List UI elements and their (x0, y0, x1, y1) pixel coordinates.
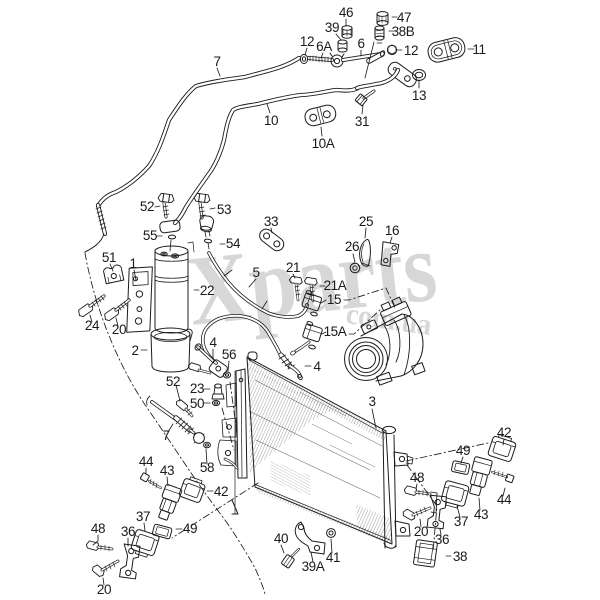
svg-text:43: 43 (160, 463, 174, 478)
svg-text:44: 44 (497, 492, 512, 507)
svg-text:12: 12 (404, 43, 418, 58)
svg-text:42: 42 (214, 484, 228, 499)
svg-text:5: 5 (252, 265, 259, 280)
svg-text:49: 49 (456, 443, 470, 458)
svg-text:13: 13 (412, 88, 426, 103)
svg-text:42: 42 (497, 425, 511, 440)
svg-text:10A: 10A (312, 136, 335, 151)
svg-text:23: 23 (190, 381, 204, 396)
svg-text:48: 48 (410, 470, 424, 485)
svg-text:15A: 15A (324, 324, 347, 339)
svg-text:4: 4 (209, 335, 217, 350)
svg-text:25: 25 (359, 214, 373, 229)
svg-text:56: 56 (222, 347, 236, 362)
svg-text:33: 33 (264, 214, 278, 229)
svg-text:10: 10 (264, 113, 278, 128)
svg-text:6: 6 (357, 36, 364, 51)
svg-text:11: 11 (472, 42, 485, 57)
svg-text:52: 52 (166, 374, 180, 389)
svg-text:21A: 21A (324, 278, 347, 293)
svg-text:6A: 6A (316, 39, 332, 54)
svg-text:36: 36 (435, 532, 449, 547)
svg-text:37: 37 (136, 509, 150, 524)
svg-text:7: 7 (162, 428, 169, 443)
svg-text:38: 38 (453, 549, 467, 564)
svg-text:4: 4 (313, 359, 321, 374)
svg-text:24: 24 (85, 318, 100, 333)
svg-text:1: 1 (129, 256, 136, 271)
svg-text:3: 3 (368, 394, 375, 409)
svg-text:15: 15 (327, 292, 341, 307)
svg-text:7: 7 (213, 54, 220, 69)
svg-text:2: 2 (131, 343, 138, 358)
svg-text:52: 52 (140, 199, 154, 214)
svg-text:12: 12 (300, 34, 314, 49)
svg-text:36: 36 (121, 524, 135, 539)
svg-text:43: 43 (474, 507, 488, 522)
svg-text:49: 49 (183, 521, 197, 536)
svg-text:39: 39 (325, 20, 339, 35)
svg-text:41: 41 (326, 550, 340, 565)
svg-text:40: 40 (274, 531, 288, 546)
svg-text:47: 47 (397, 10, 411, 25)
svg-text:51: 51 (102, 250, 116, 265)
svg-text:22: 22 (200, 283, 214, 298)
svg-text:21: 21 (286, 260, 300, 275)
svg-text:31: 31 (355, 114, 369, 129)
svg-text:20: 20 (112, 322, 126, 337)
svg-text:26: 26 (345, 239, 359, 254)
svg-text:54: 54 (226, 236, 241, 251)
svg-text:46: 46 (339, 5, 353, 20)
svg-text:50: 50 (190, 396, 204, 411)
svg-text:55: 55 (143, 228, 157, 243)
svg-text:16: 16 (385, 223, 399, 238)
svg-text:53: 53 (217, 202, 231, 217)
svg-text:37: 37 (454, 514, 468, 529)
svg-text:44: 44 (139, 454, 154, 469)
svg-text:38B: 38B (392, 24, 415, 39)
svg-text:48: 48 (91, 521, 105, 536)
